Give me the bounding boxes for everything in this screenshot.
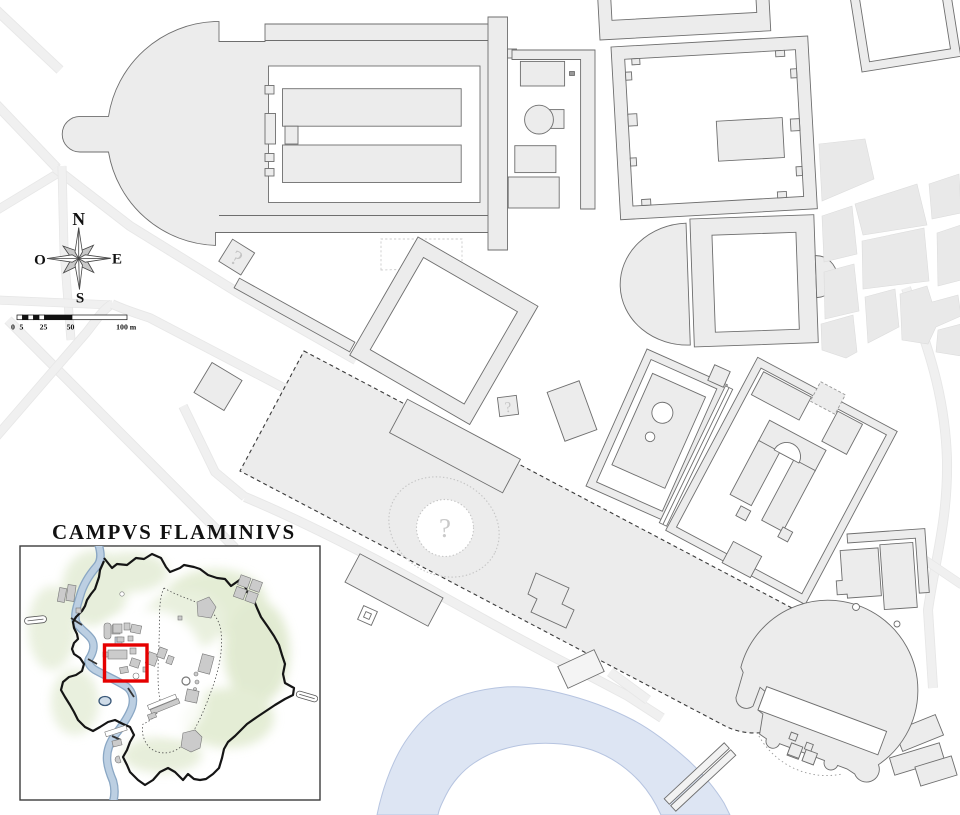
svg-text:N: N bbox=[72, 209, 85, 229]
svg-text:0: 0 bbox=[11, 323, 15, 332]
svg-text:S: S bbox=[76, 291, 84, 307]
svg-text:100: 100 bbox=[116, 323, 128, 332]
svg-text:m: m bbox=[130, 323, 137, 332]
svg-text:25: 25 bbox=[40, 323, 48, 332]
svg-text:50: 50 bbox=[67, 323, 75, 332]
svg-text:O: O bbox=[34, 252, 46, 268]
svg-text:E: E bbox=[112, 252, 122, 268]
svg-text:CAMPVS FLAMINIVS: CAMPVS FLAMINIVS bbox=[52, 520, 296, 544]
svg-text:?: ? bbox=[439, 513, 451, 543]
svg-text:5: 5 bbox=[20, 323, 24, 332]
